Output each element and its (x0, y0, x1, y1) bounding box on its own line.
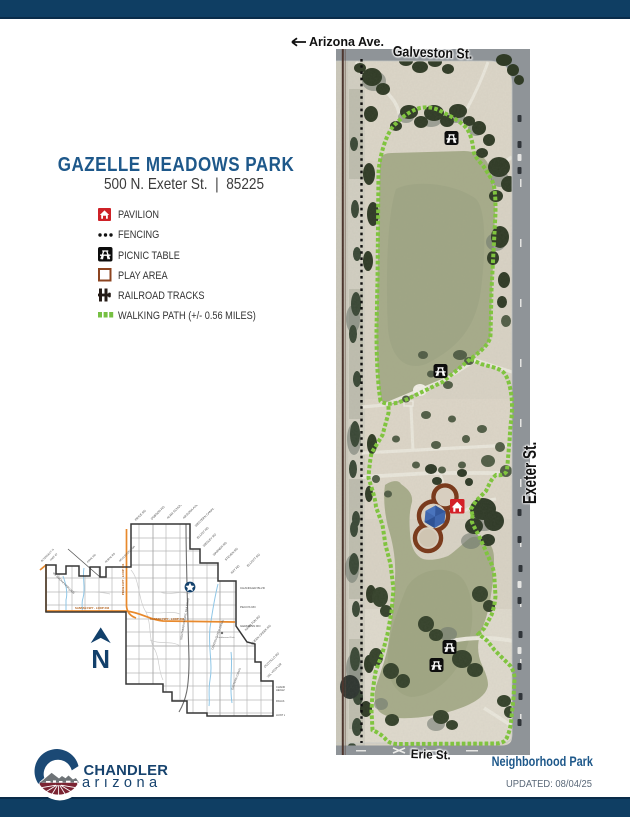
svg-text:N: N (91, 644, 110, 674)
svg-text:SANTAN FWY - LOOP 202: SANTAN FWY - LOOP 202 (150, 617, 185, 621)
svg-text:HUNT HWY: HUNT HWY (276, 713, 285, 717)
svg-text:CHANDLER BLVD: CHANDLER BLVD (240, 586, 266, 590)
svg-text:Tumbleweed Park: Tumbleweed Park (217, 636, 235, 639)
svg-text:RIGGS RD: RIGGS RD (276, 699, 285, 703)
svg-text:SANTAN FWY - LOOP 202: SANTAN FWY - LOOP 202 (75, 606, 110, 610)
svg-text:HEIGHTS RD: HEIGHTS RD (276, 688, 285, 692)
svg-text:PRICE FWY - LOOP 101: PRICE FWY - LOOP 101 (121, 563, 125, 595)
svg-text:PECOS RD: PECOS RD (240, 605, 257, 609)
svg-text:arızona: arızona (82, 775, 161, 791)
